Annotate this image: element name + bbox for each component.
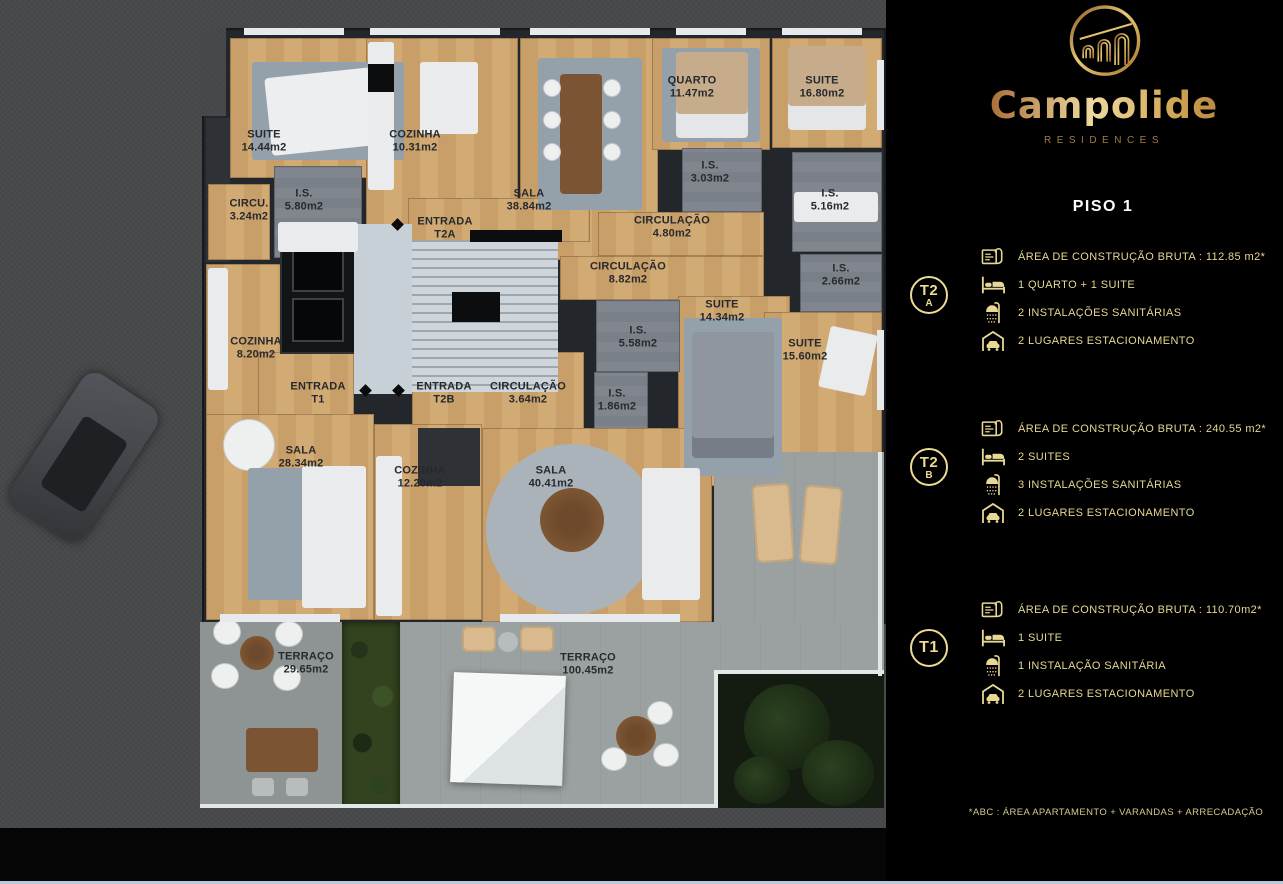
room-name: CIRCULAÇÃO [490, 380, 566, 393]
chair [276, 622, 302, 646]
spec-text: ÁREA DE CONSTRUÇÃO BRUTA : 240.55 m2* [1018, 423, 1266, 435]
chair [214, 620, 240, 644]
room-label: ENTRADAT1 [290, 380, 345, 405]
room-label: CIRCU.3.24m2 [229, 197, 268, 222]
room-name: ENTRADA [417, 215, 472, 228]
room-area: 15.60m2 [783, 350, 828, 363]
spec-row: 1 SUITE [981, 624, 1262, 652]
room-name: SUITE [800, 74, 845, 87]
chair [212, 664, 238, 688]
unit-block-t1: T1ÁREA DE CONSTRUÇÃO BRUTA : 110.70m2*1 … [886, 596, 1283, 716]
room-area: T2B [416, 393, 471, 406]
unit-badge-t2b: T2B [910, 448, 948, 486]
room-label: ENTRADAT2A [417, 215, 472, 240]
terrace-table [240, 636, 274, 670]
sofa [302, 466, 366, 608]
spec-text: 3 INSTALAÇÕES SANITÁRIAS [1018, 479, 1181, 491]
window-strip [244, 28, 344, 35]
room-area: 14.44m2 [242, 141, 287, 154]
room-label: SUITE16.80m2 [800, 74, 845, 99]
flyer-page: SUITE14.44m2CIRCU.3.24m2I.S.5.80m2COZINH… [0, 0, 1283, 884]
chair [252, 778, 274, 796]
window-strip [877, 60, 884, 130]
shower-icon [981, 655, 1005, 677]
unit-badge-top: T2 [912, 283, 946, 298]
room-name: I.S. [691, 159, 730, 172]
room-label: SUITE15.60m2 [783, 337, 828, 362]
room-name: COZINHA [394, 464, 446, 477]
kitchen-counter [208, 268, 228, 390]
lounge-chair [520, 626, 554, 652]
room-label: I.S.5.58m2 [619, 324, 658, 349]
spec-row: ÁREA DE CONSTRUÇÃO BRUTA : 240.55 m2* [981, 415, 1266, 443]
room-area: 2.66m2 [822, 275, 861, 288]
rail-garden-left [714, 670, 718, 808]
room-name: TERRAÇO [278, 650, 334, 663]
room-name: I.S. [598, 387, 637, 400]
brand-name: Campolide [990, 84, 1219, 127]
terrace-dining-table [246, 728, 318, 772]
room-name: ENTRADA [290, 380, 345, 393]
sun-lounger [751, 483, 794, 563]
spec-text: ÁREA DE CONSTRUÇÃO BRUTA : 110.70m2* [1018, 604, 1262, 616]
rail-right [878, 452, 882, 676]
sun-lounger [799, 484, 844, 565]
room-label: I.S.5.80m2 [285, 187, 324, 212]
lounge-chair [462, 626, 496, 652]
elevator-cab [292, 298, 344, 342]
room-label: SALA28.34m2 [279, 444, 324, 469]
unit-block-t2b: T2BÁREA DE CONSTRUÇÃO BRUTA : 240.55 m2*… [886, 415, 1283, 535]
chair [604, 80, 620, 96]
room-label: SUITE14.44m2 [242, 128, 287, 153]
shower-icon [981, 302, 1005, 324]
rail-bottom [200, 804, 718, 808]
room-area: 8.82m2 [590, 273, 666, 286]
side-table [498, 632, 518, 652]
spec-text: 1 INSTALAÇÃO SANITÁRIA [1018, 660, 1166, 672]
room-name: CIRCULAÇÃO [634, 214, 710, 227]
bed-icon [981, 627, 1005, 649]
room-name: SALA [507, 187, 552, 200]
spec-text: 2 LUGARES ESTACIONAMENTO [1018, 688, 1195, 700]
unit-specs: ÁREA DE CONSTRUÇÃO BRUTA : 112.85 m2*1 Q… [981, 243, 1265, 355]
room-area: 14.34m2 [700, 311, 745, 324]
window-strip [877, 330, 884, 410]
dining-table [560, 74, 602, 194]
stove [368, 64, 394, 92]
window-strip [676, 28, 746, 35]
room-name: SALA [279, 444, 324, 457]
footnote: *ABC : ÁREA APARTAMENTO + VARANDAS + ARR… [969, 807, 1263, 818]
spec-row: 2 LUGARES ESTACIONAMENTO [981, 680, 1262, 708]
spec-text: 2 LUGARES ESTACIONAMENTO [1018, 507, 1195, 519]
spec-text: 1 SUITE [1018, 632, 1062, 644]
room-label: ENTRADAT2B [416, 380, 471, 405]
room-label: COZINHA12.20m2 [394, 464, 446, 489]
asphalt-notch [200, 28, 226, 116]
window-strip [530, 28, 650, 35]
hedge [342, 622, 400, 808]
floor-title: PISO 1 [1073, 198, 1134, 216]
room-name: CIRCU. [229, 197, 268, 210]
room-name: CIRCULAÇÃO [590, 260, 666, 273]
room-area: 3.03m2 [691, 172, 730, 185]
round-table [224, 420, 274, 470]
window-strip [370, 28, 500, 35]
room-name: I.S. [619, 324, 658, 337]
chair [602, 748, 626, 770]
info-panel: Campolide RESIDENCES PISO 1 T2AÁREA DE C… [886, 0, 1283, 884]
room-label: I.S.5.16m2 [811, 187, 850, 212]
unit-block-t2a: T2AÁREA DE CONSTRUÇÃO BRUTA : 112.85 m2*… [886, 243, 1283, 363]
room-label: SALA38.84m2 [507, 187, 552, 212]
room-label: SUITE14.34m2 [700, 298, 745, 323]
garage-icon [981, 330, 1005, 352]
spec-row: 2 LUGARES ESTACIONAMENTO [981, 327, 1265, 355]
spec-row: 2 INSTALAÇÕES SANITÁRIAS [981, 299, 1265, 327]
bathtub [278, 222, 358, 252]
spec-text: 1 QUARTO + 1 SUITE [1018, 279, 1135, 291]
shower-icon [981, 474, 1005, 496]
rail-garden-top [714, 670, 884, 674]
room-label: CIRCULAÇÃO4.80m2 [634, 214, 710, 239]
brand-subtitle: RESIDENCES [1044, 135, 1164, 146]
bed-icon [981, 274, 1005, 296]
spec-row: 2 SUITES [981, 443, 1266, 471]
room-area: 38.84m2 [507, 200, 552, 213]
sideboard [470, 230, 562, 242]
bed-icon [981, 446, 1005, 468]
room-area: 11.47m2 [668, 87, 717, 100]
room-label: CIRCULAÇÃO8.82m2 [590, 260, 666, 285]
unit-badge-top: T1 [912, 631, 946, 665]
room-label: I.S.3.03m2 [691, 159, 730, 184]
spec-text: 2 INSTALAÇÕES SANITÁRIAS [1018, 307, 1181, 319]
room-area: 29.65m2 [278, 663, 334, 676]
spec-row: 3 INSTALAÇÕES SANITÁRIAS [981, 471, 1266, 499]
spec-text: 2 SUITES [1018, 451, 1070, 463]
room-label: COZINHA10.31m2 [389, 128, 441, 153]
spec-row: 1 INSTALAÇÃO SANITÁRIA [981, 652, 1262, 680]
unit-badge-bottom: A [912, 299, 946, 309]
spec-row: 1 QUARTO + 1 SUITE [981, 271, 1265, 299]
unit-specs: ÁREA DE CONSTRUÇÃO BRUTA : 240.55 m2*2 S… [981, 415, 1266, 527]
room-label: QUARTO11.47m2 [668, 74, 717, 99]
unit-badge-t2a: T2A [910, 276, 948, 314]
blueprint-icon [981, 246, 1005, 268]
chair [544, 80, 560, 96]
floorplan-render: SUITE14.44m2CIRCU.3.24m2I.S.5.80m2COZINH… [0, 0, 886, 884]
sofa [642, 468, 700, 600]
room-area: 100.45m2 [560, 664, 616, 677]
chair [544, 144, 560, 160]
spec-row: ÁREA DE CONSTRUÇÃO BRUTA : 112.85 m2* [981, 243, 1265, 271]
room-area: 4.80m2 [634, 227, 710, 240]
kitchen-island [420, 62, 478, 134]
room-area: 5.16m2 [811, 200, 850, 213]
room-label: SALA40.41m2 [529, 464, 574, 489]
chair [604, 112, 620, 128]
room-area: 8.20m2 [230, 348, 282, 361]
unit-badge-top: T2 [912, 455, 946, 470]
pergola [450, 672, 566, 786]
room-area: 5.58m2 [619, 337, 658, 350]
room-name: SUITE [700, 298, 745, 311]
unit-specs: ÁREA DE CONSTRUÇÃO BRUTA : 110.70m2*1 SU… [981, 596, 1262, 708]
room-area: 3.64m2 [490, 393, 566, 406]
room-name: I.S. [811, 187, 850, 200]
blueprint-icon [981, 599, 1005, 621]
room-name: I.S. [822, 262, 861, 275]
room-area: 3.24m2 [229, 210, 268, 223]
unit-badge-bottom: B [912, 471, 946, 481]
spec-text: 2 LUGARES ESTACIONAMENTO [1018, 335, 1195, 347]
chair [604, 144, 620, 160]
unit-badge-t1: T1 [910, 629, 948, 667]
room-label: I.S.1.86m2 [598, 387, 637, 412]
blueprint-icon [981, 418, 1005, 440]
window-strip [500, 614, 680, 622]
room-area: 1.86m2 [598, 400, 637, 413]
spec-text: ÁREA DE CONSTRUÇÃO BRUTA : 112.85 m2* [1018, 251, 1265, 263]
room-label: I.S.2.66m2 [822, 262, 861, 287]
room-label: CIRCULAÇÃO3.64m2 [490, 380, 566, 405]
room-name: TERRAÇO [560, 651, 616, 664]
room-area: 40.41m2 [529, 477, 574, 490]
room-name: QUARTO [668, 74, 717, 87]
room-area: 12.20m2 [394, 477, 446, 490]
window-strip [782, 28, 862, 35]
garden-tree [802, 740, 874, 806]
room-name: I.S. [285, 187, 324, 200]
chair [544, 112, 560, 128]
spec-row: 2 LUGARES ESTACIONAMENTO [981, 499, 1266, 527]
garage-icon [981, 683, 1005, 705]
window-strip [220, 614, 340, 622]
chair [654, 744, 678, 766]
room-area: T2A [417, 228, 472, 241]
room-name: COZINHA [230, 335, 282, 348]
room-name: ENTRADA [416, 380, 471, 393]
lobby-hall [354, 224, 412, 394]
bed [692, 332, 774, 458]
room-name: SUITE [242, 128, 287, 141]
room-area: T1 [290, 393, 345, 406]
chair [648, 702, 672, 724]
room-label: TERRAÇO100.45m2 [560, 651, 616, 676]
round-table [540, 488, 604, 552]
garden-tree [734, 756, 790, 804]
room-area: 5.80m2 [285, 200, 324, 213]
elevator-cab [292, 248, 344, 292]
room-name: SALA [529, 464, 574, 477]
chair [286, 778, 308, 796]
room-label: TERRAÇO29.65m2 [278, 650, 334, 675]
room-name: SUITE [783, 337, 828, 350]
room-label: COZINHA8.20m2 [230, 335, 282, 360]
spec-row: ÁREA DE CONSTRUÇÃO BRUTA : 110.70m2* [981, 596, 1262, 624]
room-area: 10.31m2 [389, 141, 441, 154]
room-area: 28.34m2 [279, 457, 324, 470]
room-name: COZINHA [389, 128, 441, 141]
garage-icon [981, 502, 1005, 524]
black-band [0, 828, 886, 884]
room-area: 16.80m2 [800, 87, 845, 100]
stair-landing [452, 292, 500, 322]
campolide-logo-icon [1063, 2, 1147, 82]
